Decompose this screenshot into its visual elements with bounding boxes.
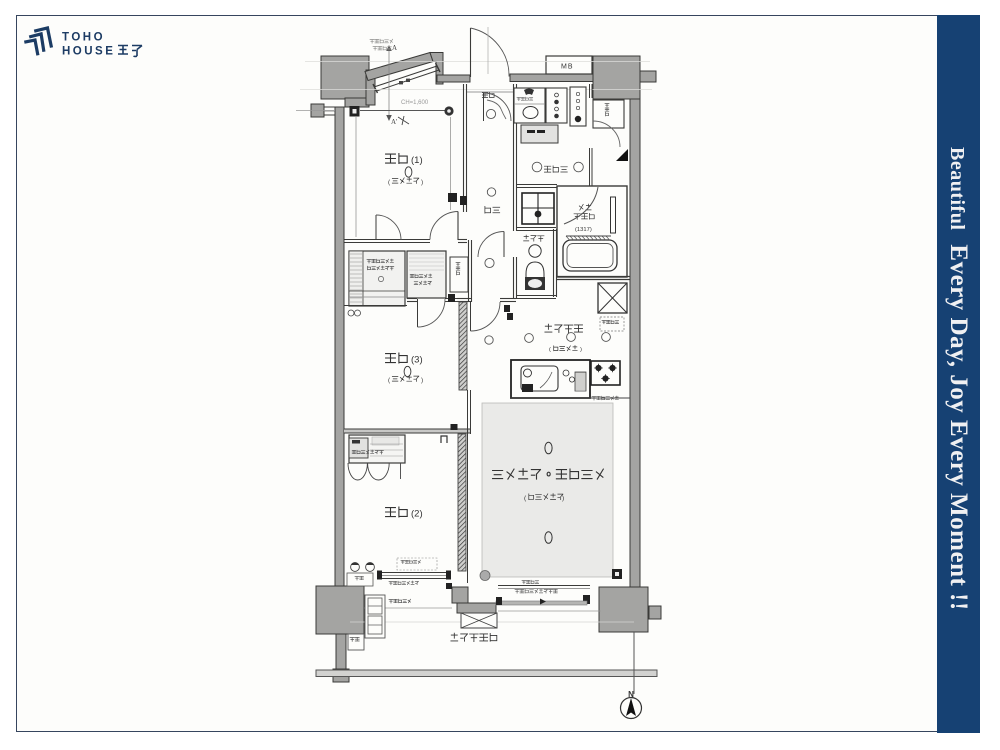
svg-text:): ): [580, 347, 582, 353]
svg-text:): ): [421, 179, 423, 186]
svg-text:N: N: [628, 690, 634, 699]
svg-text:(3): (3): [411, 355, 423, 366]
svg-text:(: (: [549, 347, 551, 353]
svg-text:(1): (1): [411, 155, 423, 166]
svg-text:MB: MB: [561, 64, 574, 71]
svg-text:A: A: [392, 44, 397, 52]
svg-text:): ): [562, 495, 564, 502]
svg-text:(: (: [388, 377, 391, 384]
svg-text:(1317): (1317): [575, 227, 592, 233]
svg-text:(2): (2): [411, 509, 423, 520]
svg-text:A': A': [391, 118, 397, 126]
svg-text:(: (: [388, 179, 391, 186]
svg-text:CH=1,600: CH=1,600: [401, 100, 429, 106]
svg-text:): ): [421, 377, 423, 384]
